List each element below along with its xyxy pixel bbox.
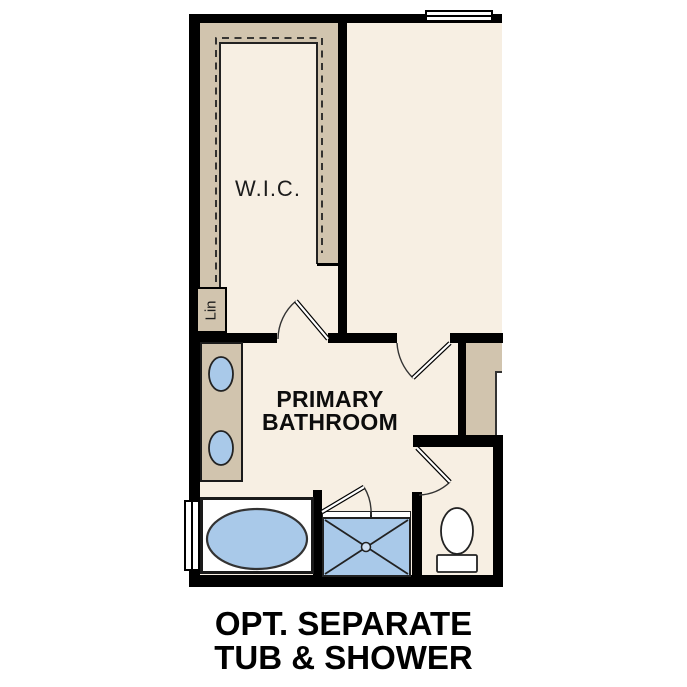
shower-drain <box>362 543 371 552</box>
wic-room-label: W.I.C. <box>210 176 326 202</box>
wic-door <box>278 301 328 339</box>
primary-bathroom-label-line1: PRIMARY <box>229 388 431 411</box>
floor-plan: Lin <box>0 0 687 687</box>
bedroom-bathroom-door <box>397 343 450 378</box>
plan-vector-overlay <box>0 0 687 687</box>
primary-bathroom-label-line2: BATHROOM <box>229 411 431 434</box>
toilet <box>437 508 477 572</box>
sink-left-top <box>209 357 233 391</box>
primary-bathroom-room-label: PRIMARY BATHROOM <box>229 388 431 434</box>
bathtub-basin <box>207 509 307 569</box>
plan-caption: OPT. SEPARATE TUB & SHOWER <box>0 607 687 675</box>
sink-left-bottom <box>209 431 233 465</box>
water-closet-door <box>417 448 450 495</box>
shower-door <box>322 487 371 515</box>
plan-caption-line2: TUB & SHOWER <box>0 641 687 675</box>
wic-closet-rod-dashed-line <box>216 38 322 282</box>
plan-caption-line1: OPT. SEPARATE <box>0 607 687 641</box>
